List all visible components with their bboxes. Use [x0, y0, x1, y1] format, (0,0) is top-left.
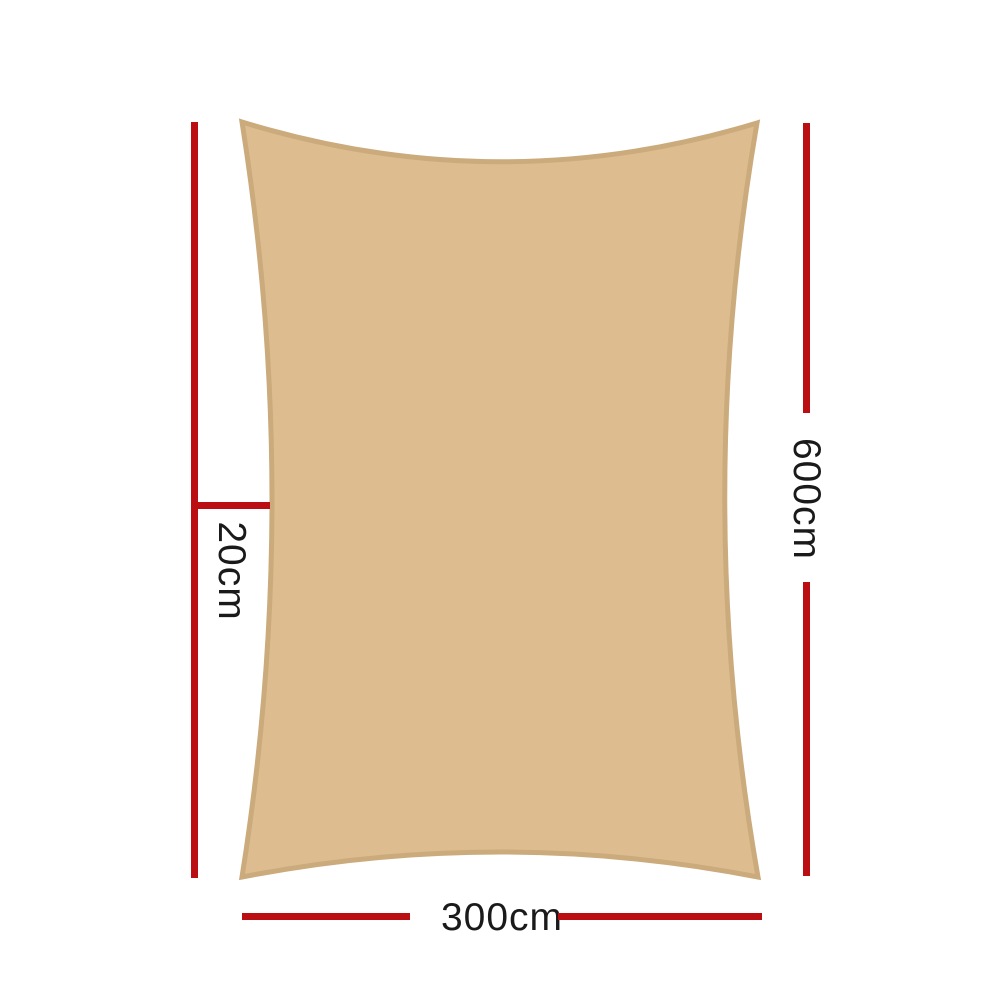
height-dimension-line-top: [803, 123, 810, 413]
height-dimension-line-bottom: [803, 582, 810, 876]
width-dimension-line-left: [242, 913, 410, 920]
width-label: 300cm: [441, 896, 563, 940]
shade-sail-shape: [0, 0, 1000, 1000]
shade-sail-dimension-diagram: 20cm 600cm 300cm: [0, 0, 1000, 1000]
sail-fabric: [242, 122, 758, 877]
height-label: 600cm: [784, 438, 828, 560]
width-dimension-line-right: [558, 913, 762, 920]
curve-depth-label: 20cm: [209, 521, 253, 620]
left-dimension-line: [191, 122, 198, 878]
curve-depth-tick: [191, 502, 270, 509]
